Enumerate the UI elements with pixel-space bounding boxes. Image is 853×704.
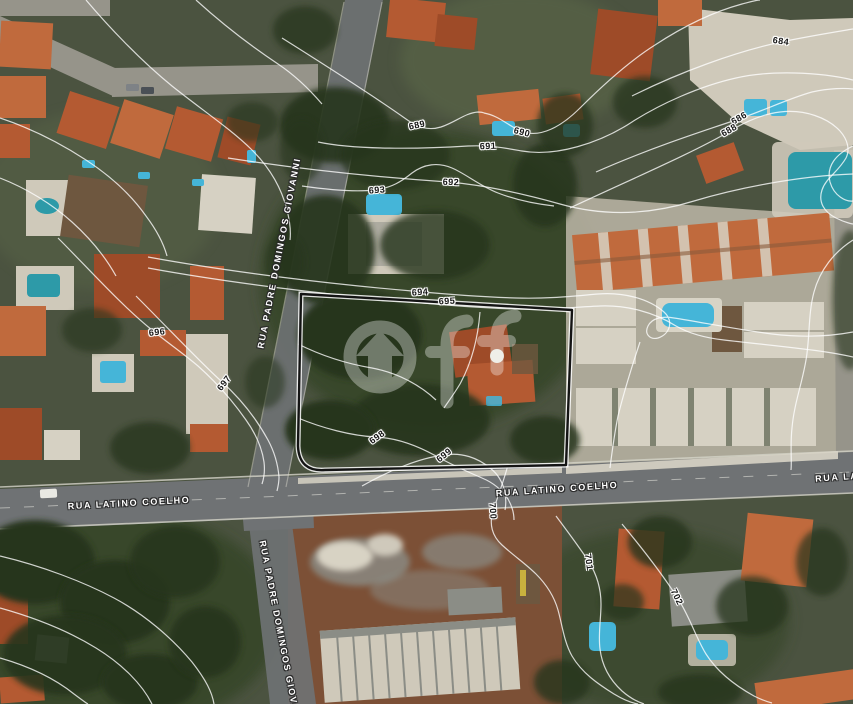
aerial-map[interactable]: 6846866886896906916926936946956966976986…	[0, 0, 853, 704]
map-imagery	[0, 0, 853, 704]
